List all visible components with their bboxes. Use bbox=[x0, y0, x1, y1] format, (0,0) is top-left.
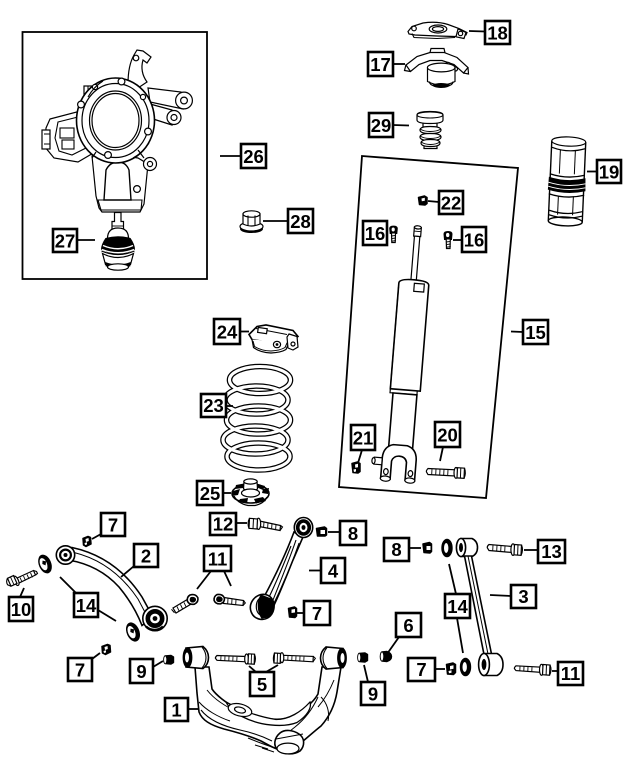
svg-text:3: 3 bbox=[518, 586, 528, 607]
svg-text:2: 2 bbox=[141, 546, 151, 567]
svg-text:29: 29 bbox=[371, 115, 392, 136]
svg-text:14: 14 bbox=[447, 596, 468, 617]
svg-text:24: 24 bbox=[217, 322, 238, 343]
svg-text:14: 14 bbox=[76, 595, 97, 616]
svg-text:16: 16 bbox=[365, 223, 386, 244]
svg-text:7: 7 bbox=[108, 515, 118, 536]
svg-text:27: 27 bbox=[55, 231, 76, 252]
svg-text:8: 8 bbox=[391, 539, 401, 560]
svg-text:28: 28 bbox=[290, 211, 311, 232]
svg-text:8: 8 bbox=[348, 523, 358, 544]
svg-text:7: 7 bbox=[416, 659, 426, 680]
svg-text:1: 1 bbox=[171, 700, 181, 721]
svg-text:21: 21 bbox=[353, 428, 374, 449]
svg-text:19: 19 bbox=[599, 162, 620, 183]
svg-text:10: 10 bbox=[11, 599, 32, 620]
svg-text:23: 23 bbox=[203, 395, 224, 416]
svg-text:25: 25 bbox=[200, 483, 221, 504]
svg-text:4: 4 bbox=[328, 561, 339, 582]
svg-text:26: 26 bbox=[243, 146, 264, 167]
svg-text:16: 16 bbox=[464, 230, 485, 251]
svg-text:13: 13 bbox=[541, 541, 562, 562]
svg-text:7: 7 bbox=[75, 660, 85, 681]
svg-text:9: 9 bbox=[136, 661, 146, 682]
svg-text:17: 17 bbox=[370, 54, 391, 75]
svg-text:11: 11 bbox=[561, 663, 581, 684]
svg-text:12: 12 bbox=[213, 514, 234, 535]
svg-text:6: 6 bbox=[403, 615, 413, 636]
svg-text:18: 18 bbox=[487, 23, 508, 44]
svg-text:7: 7 bbox=[312, 603, 322, 624]
svg-text:9: 9 bbox=[368, 684, 378, 705]
svg-text:11: 11 bbox=[208, 549, 228, 570]
svg-text:5: 5 bbox=[257, 674, 267, 695]
svg-text:22: 22 bbox=[441, 193, 462, 214]
svg-text:15: 15 bbox=[525, 322, 546, 343]
svg-text:20: 20 bbox=[437, 425, 458, 446]
